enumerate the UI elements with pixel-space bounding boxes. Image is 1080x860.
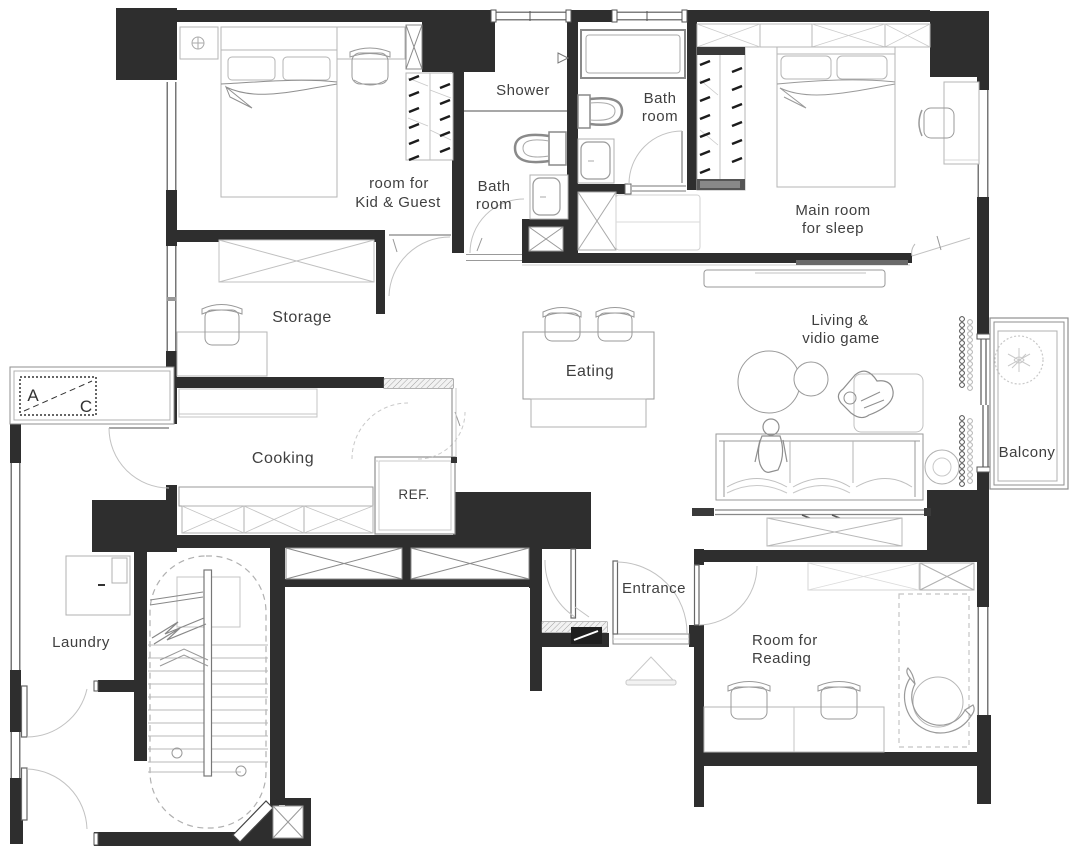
svg-text:Room for: Room for bbox=[752, 632, 818, 649]
svg-text:Shower: Shower bbox=[496, 82, 550, 99]
svg-text:Living &: Living & bbox=[811, 312, 868, 329]
svg-text:room: room bbox=[642, 108, 678, 125]
svg-text:Laundry: Laundry bbox=[52, 634, 110, 651]
svg-text:for sleep: for sleep bbox=[802, 220, 864, 237]
svg-text:vidio game: vidio game bbox=[802, 330, 880, 347]
svg-text:Entrance: Entrance bbox=[622, 580, 686, 597]
svg-text:Eating: Eating bbox=[566, 363, 614, 380]
svg-text:Bath: Bath bbox=[478, 178, 511, 195]
svg-text:Kid & Guest: Kid & Guest bbox=[355, 194, 441, 211]
svg-text:Main room: Main room bbox=[795, 202, 870, 219]
svg-text:REF.: REF. bbox=[398, 487, 429, 502]
svg-text:A: A bbox=[27, 386, 39, 405]
svg-text:Bath: Bath bbox=[644, 90, 677, 107]
svg-text:Storage: Storage bbox=[272, 309, 332, 326]
svg-text:Balcony: Balcony bbox=[999, 444, 1056, 461]
svg-text:room for: room for bbox=[369, 175, 429, 192]
svg-text:Cooking: Cooking bbox=[252, 450, 314, 467]
svg-text:Reading: Reading bbox=[752, 650, 811, 667]
svg-text:room: room bbox=[476, 196, 512, 213]
svg-text:C: C bbox=[80, 397, 92, 416]
